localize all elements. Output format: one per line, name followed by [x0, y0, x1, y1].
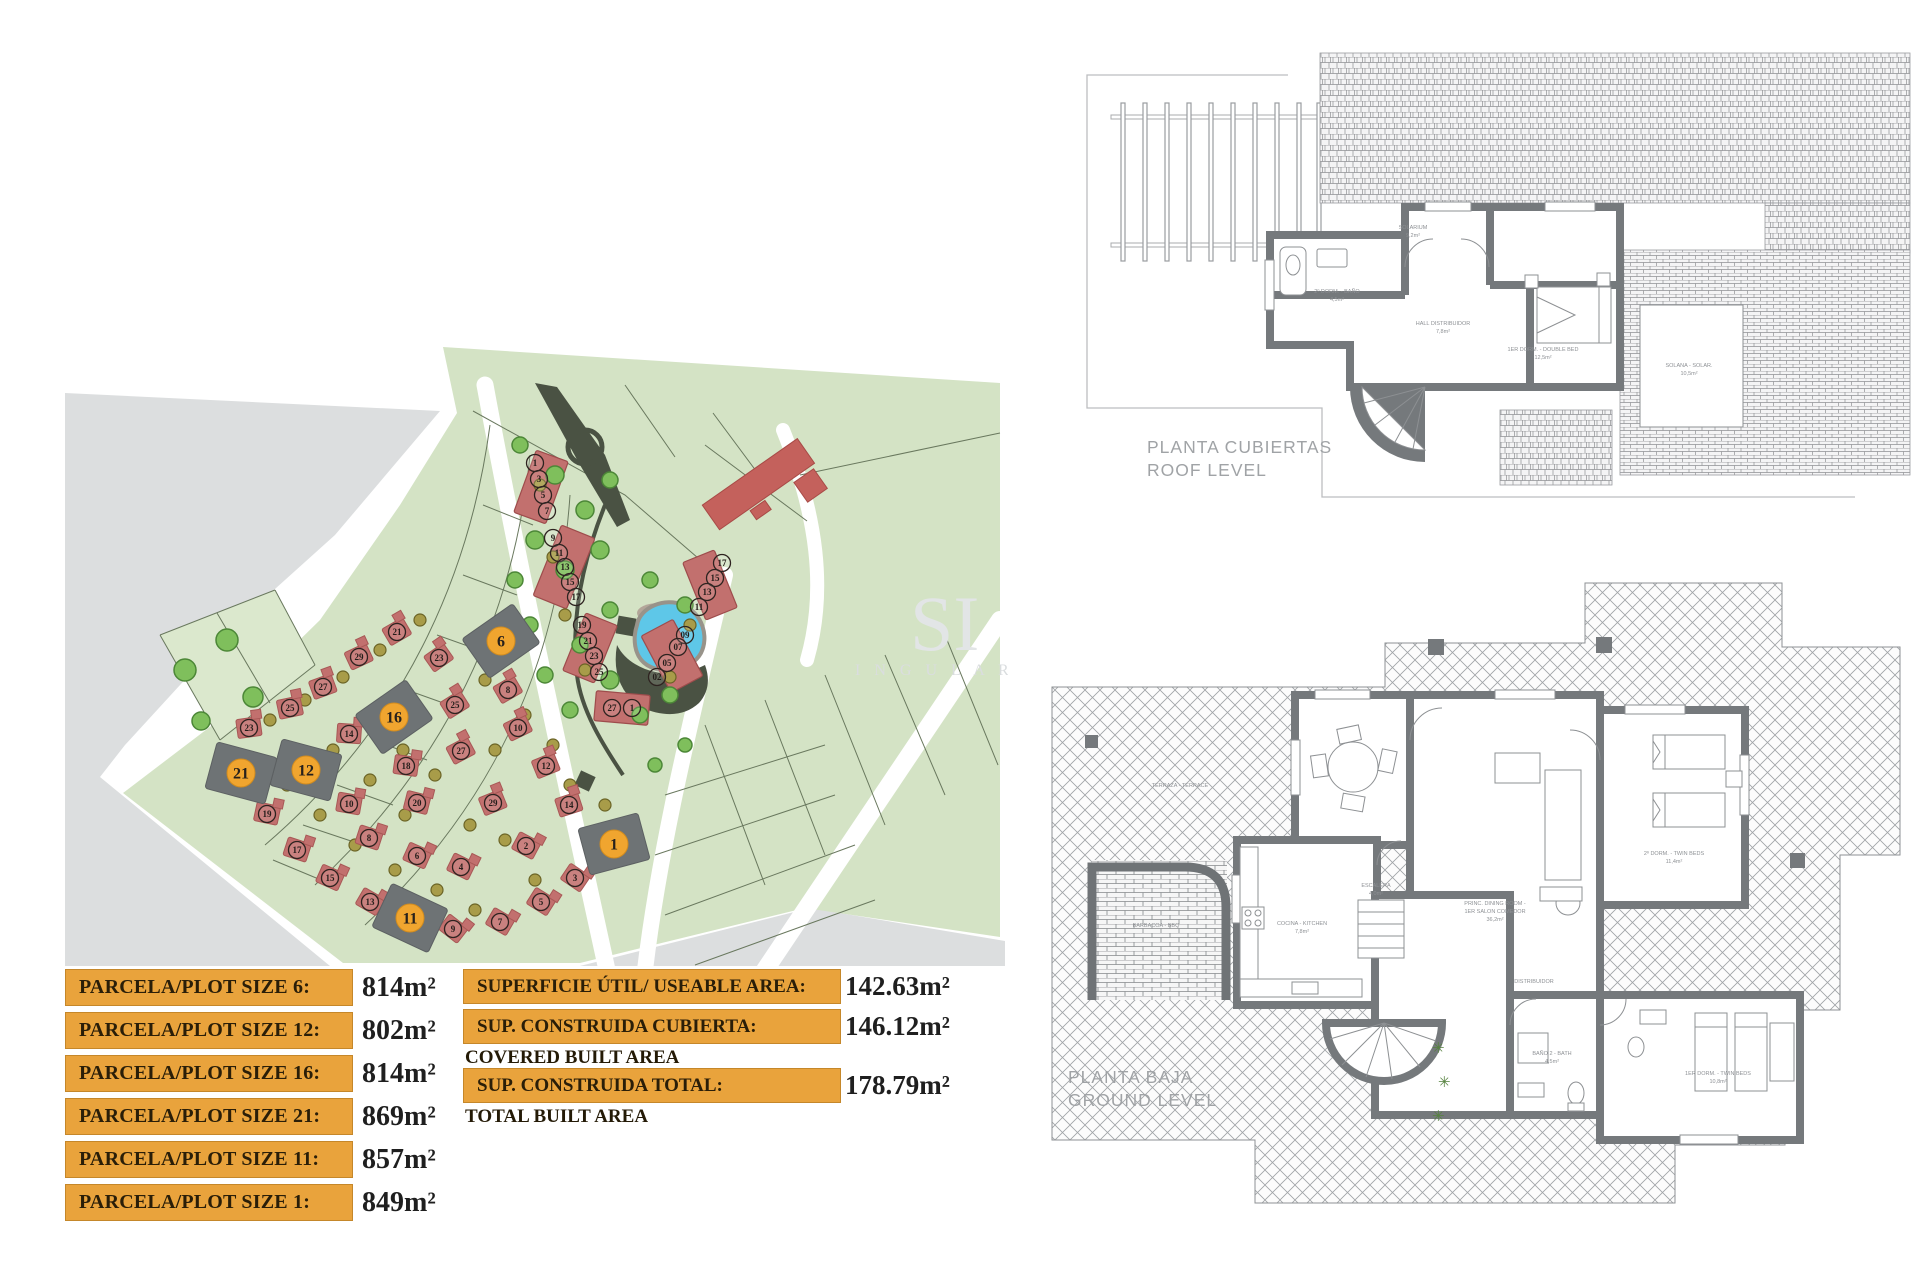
tree-icon [662, 687, 678, 703]
plot-number: 27 [608, 703, 618, 713]
site-plan-map: 2129272523232527298101214141820108624191… [65, 325, 1008, 970]
plot-number: 21 [393, 627, 403, 637]
plot-number: 8 [367, 833, 372, 843]
plot-number: 9 [451, 924, 456, 934]
plot-size-value: 869m² [362, 1101, 436, 1133]
room-label: PRINC. DINING ROOM - [1464, 901, 1526, 907]
table-row: PARCELA/PLOT SIZE 16: 814m² [65, 1055, 436, 1092]
area-sublabel: COVERED BUILT AREA [465, 1047, 679, 1069]
tree-icon [264, 714, 276, 726]
tree-icon [562, 702, 578, 718]
tree-icon [537, 667, 553, 683]
plot-number: 09 [681, 630, 691, 640]
plot-number: 27 [457, 746, 467, 756]
table-row: SUP. CONSTRUIDA TOTAL: 178.79m² [463, 1068, 841, 1103]
table-row: SUP. CONSTRUIDA CUBIERTA: 146.12m² [463, 1009, 841, 1044]
spiral-staircase [1350, 387, 1425, 462]
plot-number: 7 [545, 506, 550, 516]
tree-icon [642, 572, 658, 588]
highlighted-plot-number: 11 [402, 911, 417, 928]
ground-plan-title-es: PLANTA BAJA [1068, 1067, 1193, 1087]
svg-text:✳: ✳ [1438, 1075, 1451, 1091]
plot-number: 17 [572, 592, 582, 602]
plot-size-value: 814m² [362, 972, 436, 1004]
highlighted-plot-number: 16 [386, 710, 402, 727]
tree-icon [489, 744, 501, 756]
plot-number: 9 [551, 533, 556, 543]
plot-number: 1 [630, 703, 635, 713]
plot-number: 13 [366, 897, 376, 907]
plot-number: 10 [514, 723, 524, 733]
tree-icon [314, 809, 326, 821]
plot-size-label: PARCELA/PLOT SIZE 12: [65, 1012, 353, 1049]
plot-number: 25 [595, 667, 605, 677]
room-label: 10,8m² [1709, 1079, 1726, 1085]
roof-plan-title-es: PLANTA CUBIERTAS [1147, 437, 1332, 457]
plot-number: 13 [703, 587, 713, 597]
plot-number: 19 [578, 620, 588, 630]
tree-icon [431, 884, 443, 896]
highlighted-plot-number: 1 [610, 837, 618, 854]
plot-number: 1 [533, 458, 538, 468]
svg-text:✳: ✳ [1432, 1109, 1445, 1125]
room-label: SOLANA - SOLAR. [1665, 363, 1713, 369]
room-label: 4,5m² [1545, 1059, 1559, 1065]
tree-icon [414, 614, 426, 626]
tree-icon [174, 659, 196, 681]
room-label: 1ER DORM. - TWIN BEDS [1685, 1071, 1751, 1077]
plot-number: 13 [561, 562, 571, 572]
room-label: 1ER SALON COMEDOR [1464, 909, 1525, 915]
plot-number: 05 [663, 658, 673, 668]
tree-icon [678, 738, 692, 752]
tree-icon [464, 819, 476, 831]
watermark-text: SI [910, 580, 979, 667]
plot-size-label: PARCELA/PLOT SIZE 6: [65, 969, 353, 1006]
plot-size-value: 802m² [362, 1015, 436, 1047]
plot-number: 17 [718, 558, 728, 568]
room-label: TERRAZA - TERRACE [1152, 783, 1209, 789]
area-value: 178.79m² [845, 1068, 950, 1103]
table-row: PARCELA/PLOT SIZE 12: 802m² [65, 1012, 436, 1049]
plot-number: 5 [539, 897, 544, 907]
plot-number: 25 [286, 703, 296, 713]
plot-number: 5 [541, 490, 546, 500]
room-label: 1ER DORM. - DOUBLE BED [1508, 347, 1579, 353]
plot-size-label: PARCELA/PLOT SIZE 11: [65, 1141, 353, 1178]
plot-size-value: 857m² [362, 1144, 436, 1176]
table-row: PARCELA/PLOT SIZE 6: 814m² [65, 969, 436, 1006]
room-label: DISTRIBUIDOR [1514, 979, 1553, 985]
tree-icon [397, 744, 409, 756]
room-label: ESCALERA [1361, 883, 1391, 889]
tree-icon [512, 437, 528, 453]
tree-icon [602, 472, 618, 488]
room-label: 9,2m² [1406, 233, 1420, 239]
brochure-page: 2129272523232527298101214141820108624191… [0, 0, 1920, 1280]
tree-icon [192, 712, 210, 730]
room-label: 11,4m² [1666, 859, 1683, 865]
tree-icon [648, 758, 662, 772]
room-label: 7,8m² [1436, 329, 1450, 335]
roof-plan-title-en: ROOF LEVEL [1147, 460, 1267, 480]
plot-size-label: PARCELA/PLOT SIZE 16: [65, 1055, 353, 1092]
room-label: 2º DORM. - TWIN BEDS [1644, 850, 1705, 857]
plot-number: 17 [293, 845, 303, 855]
ground-plan-title-en: GROUND LEVEL [1068, 1090, 1217, 1110]
tree-icon [599, 799, 611, 811]
tree-icon [559, 609, 571, 621]
plot-number: 19 [263, 809, 273, 819]
plot-size-label: PARCELA/PLOT SIZE 1: [65, 1184, 353, 1221]
svg-text:✳: ✳ [1432, 1041, 1445, 1057]
room-label: BARBACOA - BBQ [1133, 923, 1180, 929]
plot-size-label: PARCELA/PLOT SIZE 21: [65, 1098, 353, 1135]
room-label: 4,5m² [1330, 297, 1344, 303]
tree-icon [526, 531, 544, 549]
tree-icon [507, 572, 523, 588]
plot-number: 11 [555, 548, 564, 558]
plot-number: 3 [537, 474, 542, 484]
plot-number: 7 [498, 917, 503, 927]
area-label: SUPERFICIE ÚTIL/ USEABLE AREA: [463, 969, 841, 1004]
plot-number: 14 [345, 729, 355, 739]
plot-number: 15 [711, 573, 721, 583]
room-label: 7,8m² [1295, 929, 1309, 935]
plot-number: 25 [451, 700, 461, 710]
plot-number: 2 [524, 841, 529, 851]
ground-level-plan: ✳ ✳ ✳ PLANTA BAJA GROUND LEVEL TERRAZA -… [1040, 555, 1920, 1235]
tree-icon [579, 664, 591, 676]
room-label: SOLARIUM [1399, 225, 1428, 231]
roof-level-plan: PLANTA CUBIERTAS ROOF LEVEL 2º DORM. - B… [1075, 35, 1920, 505]
area-label: SUP. CONSTRUIDA TOTAL: [463, 1068, 841, 1103]
tree-icon [591, 541, 609, 559]
room-label: 36,2m² [1486, 917, 1503, 923]
plot-number: 23 [590, 651, 600, 661]
highlighted-plot-number: 12 [298, 763, 314, 780]
tree-icon [546, 466, 564, 484]
plot-number: 21 [584, 636, 594, 646]
area-value: 142.63m² [845, 969, 950, 1004]
room-label: 10,5m² [1680, 371, 1697, 377]
tree-icon [602, 602, 618, 618]
plot-number: 3 [573, 873, 578, 883]
tree-icon [469, 904, 481, 916]
plot-number: 14 [565, 800, 575, 810]
area-sublabel: TOTAL BUILT AREA [465, 1106, 648, 1128]
room-label: BAÑO 2 - BATH [1532, 1050, 1571, 1057]
plot-number: 18 [402, 761, 412, 771]
plot-number: 29 [489, 798, 499, 808]
plot-number: 15 [566, 577, 576, 587]
plot-number: 10 [345, 799, 355, 809]
plot-number: 07 [674, 642, 684, 652]
tree-icon [337, 671, 349, 683]
plot-number: 4 [459, 862, 464, 872]
table-row: PARCELA/PLOT SIZE 1: 849m² [65, 1184, 436, 1221]
tree-icon [529, 874, 541, 886]
tree-icon [429, 769, 441, 781]
tree-icon [216, 629, 238, 651]
plot-number: 6 [415, 851, 420, 861]
plot-number: 15 [326, 873, 336, 883]
plot-number: 02 [653, 672, 663, 682]
plot-number: 11 [695, 602, 704, 612]
highlighted-plot-number: 6 [497, 634, 505, 651]
tree-icon [243, 687, 263, 707]
tree-icon [576, 501, 594, 519]
area-label: SUP. CONSTRUIDA CUBIERTA: [463, 1009, 841, 1044]
room-label: 2º DORM. - BAÑO [1314, 288, 1360, 295]
table-row: SUPERFICIE ÚTIL/ USEABLE AREA: 142.63m² [463, 969, 841, 1004]
plot-number: 23 [435, 653, 445, 663]
room-label: 12,5m² [1534, 355, 1551, 361]
table-row: PARCELA/PLOT SIZE 21: 869m² [65, 1098, 436, 1135]
tree-icon [364, 774, 376, 786]
plot-number: 23 [245, 723, 255, 733]
room-label: 4,0m² [1369, 891, 1383, 897]
plot-number: 27 [319, 682, 329, 692]
area-value: 146.12m² [845, 1009, 950, 1044]
highlighted-plot-number: 21 [233, 766, 249, 783]
plot-size-value: 814m² [362, 1058, 436, 1090]
plot-size-value: 849m² [362, 1187, 436, 1219]
plot-number: 8 [506, 685, 511, 695]
roof-tiles [1320, 53, 1910, 203]
plot-number: 20 [413, 798, 423, 808]
table-row: PARCELA/PLOT SIZE 11: 857m² [65, 1141, 436, 1178]
tree-icon [499, 834, 511, 846]
watermark-subtext: I N G U L A R [855, 662, 1008, 679]
tree-icon [389, 864, 401, 876]
room-label: HALL DISTRIBUIDOR [1416, 321, 1471, 327]
plot-number: 29 [355, 652, 365, 662]
tree-icon [374, 644, 386, 656]
bbq-patio [1092, 860, 1227, 1000]
room-label: COCINA - KITCHEN [1277, 921, 1327, 927]
plot-number: 12 [542, 761, 552, 771]
